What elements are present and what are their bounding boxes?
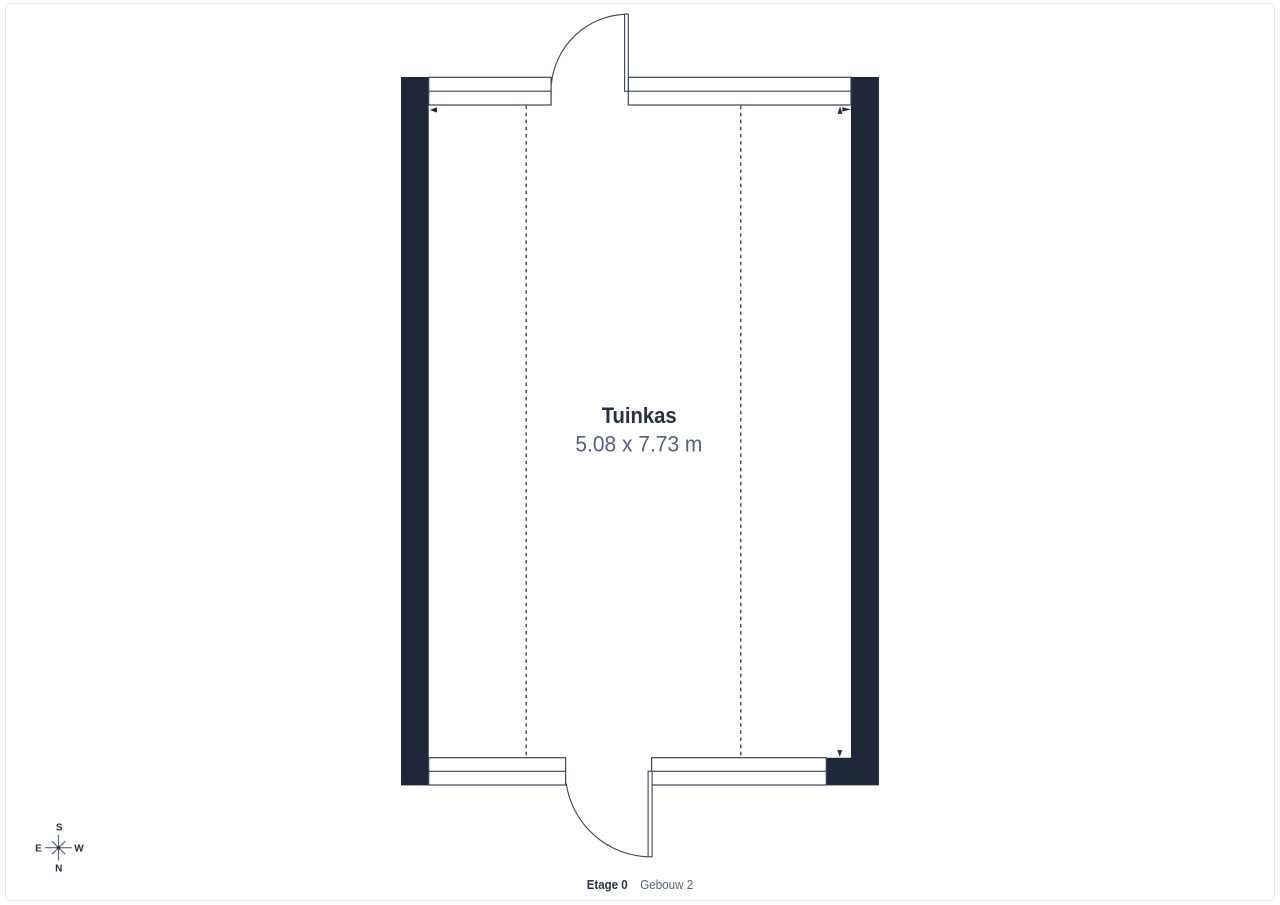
svg-text:E: E (35, 844, 42, 855)
svg-text:W: W (74, 844, 84, 855)
svg-text:Tuinkas: Tuinkas (602, 403, 677, 428)
svg-text:Etage 0: Etage 0 (587, 878, 628, 892)
svg-text:Gebouw 2: Gebouw 2 (640, 878, 693, 892)
svg-text:N: N (55, 864, 62, 875)
svg-text:S: S (56, 823, 63, 834)
svg-text:5.08 x 7.73 m: 5.08 x 7.73 m (575, 432, 702, 457)
